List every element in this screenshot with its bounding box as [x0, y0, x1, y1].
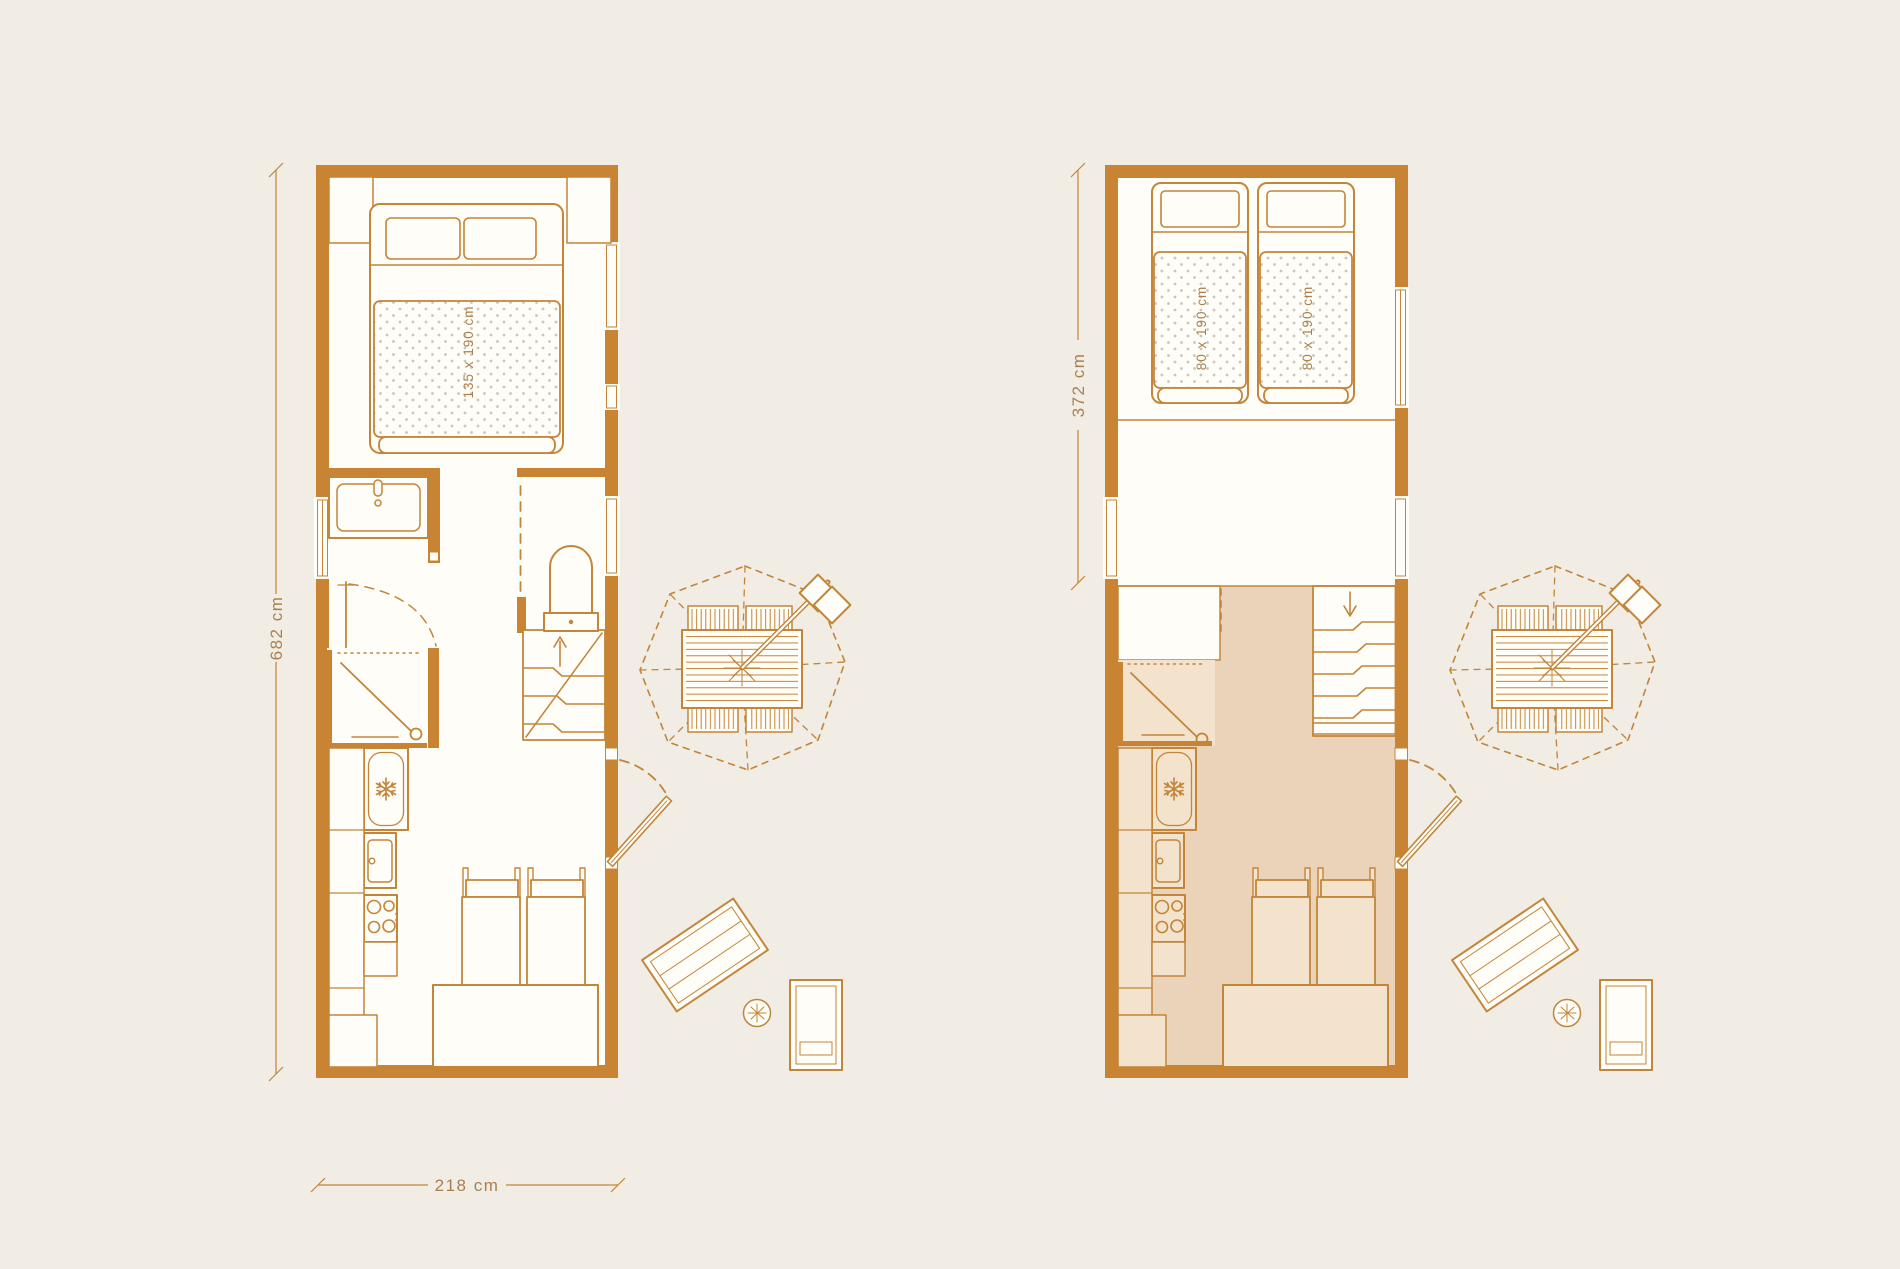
dimension-label-218: 218 cm — [435, 1176, 500, 1195]
fridge-a — [364, 748, 408, 830]
kitchen-sink-b — [1152, 833, 1184, 888]
faucet-icon — [374, 480, 382, 496]
bed-size-label-b1: 80 x 190 cm — [1194, 286, 1209, 371]
bed-size-label-a: 135 x 190 cm — [461, 305, 476, 398]
stairs-up — [523, 630, 605, 740]
toilet — [544, 546, 598, 631]
shower-b — [1118, 660, 1215, 746]
outdoor-set-a — [640, 566, 850, 1070]
wardrobe-b — [1118, 586, 1220, 660]
dimension-label-372: 372 cm — [1069, 353, 1088, 418]
floor-plans-canvas: 135 x 190 cm — [0, 0, 1900, 1269]
dimension-width-a: 218 cm — [311, 1176, 625, 1195]
shower-a — [327, 648, 428, 748]
floor-plan-b: 80 x 190 cm 80 x 190 cm — [1069, 163, 1461, 1078]
cooktop-b — [1152, 895, 1186, 942]
wardrobe-right — [567, 177, 611, 243]
dimension-length-b: 372 cm — [1069, 163, 1088, 590]
double-bed: 135 x 190 cm — [370, 204, 563, 453]
floor-plan-a: 135 x 190 cm — [267, 163, 671, 1195]
washbasin — [329, 477, 428, 538]
bed-size-label-b2: 80 x 190 cm — [1300, 286, 1315, 371]
dimension-label-682: 682 cm — [267, 596, 286, 661]
floor-plans-scene: 135 x 190 cm — [0, 0, 1900, 1269]
kitchen-sink-a — [364, 833, 396, 888]
dimension-length-a: 682 cm — [267, 163, 286, 1081]
cooktop-a — [364, 895, 398, 942]
fridge-b — [1152, 748, 1196, 830]
outdoor-set-b — [1450, 566, 1660, 1070]
wardrobe-left — [329, 177, 373, 243]
